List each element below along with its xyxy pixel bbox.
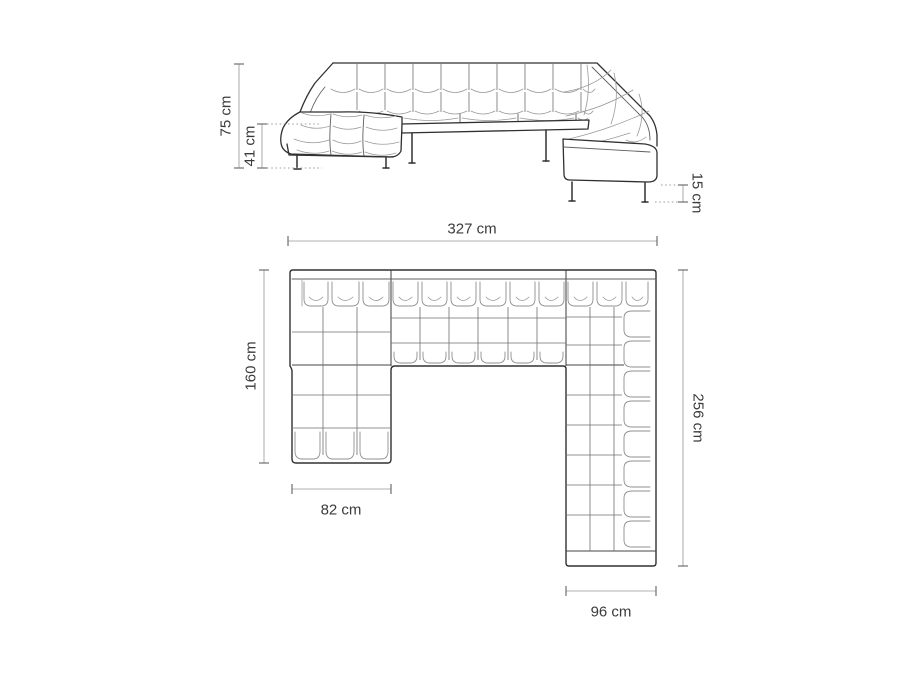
dimension-leg-height: 15 cm (655, 173, 706, 214)
plan-view: 327 cm 160 cm 82 cm 256 cm 96 cm (243, 221, 707, 621)
right-arm-width-label: 96 cm (591, 604, 632, 621)
back-tuft-scallops (331, 89, 595, 114)
plan-right-grid (566, 307, 622, 551)
plan-back-cushions (304, 282, 648, 306)
leg-height-label: 15 cm (689, 173, 706, 214)
dimension-total-height: 75 cm (218, 64, 245, 168)
total-width-label: 327 cm (447, 221, 496, 238)
diagram-canvas: 75 cm 41 cm 15 cm (0, 0, 900, 675)
chaise-width-label: 82 cm (321, 502, 362, 519)
chaise-module (281, 112, 402, 157)
perspective-view: 75 cm 41 cm 15 cm (218, 63, 706, 213)
dimension-right-depth: 256 cm (678, 270, 707, 566)
corner-tufts (564, 65, 649, 152)
sofa-plan-drawing (290, 270, 656, 566)
right-arm-panel (563, 139, 657, 182)
dimension-total-width: 327 cm (288, 221, 657, 247)
dimension-chaise-width: 82 cm (292, 484, 391, 519)
left-depth-label: 160 cm (243, 341, 260, 390)
seat-height-label: 41 cm (242, 126, 259, 167)
plan-chaise-bottom-scallops (295, 432, 388, 459)
dimension-left-depth: 160 cm (243, 270, 270, 463)
plan-right-cushion-scallops (624, 311, 650, 547)
dimension-right-arm-width: 96 cm (566, 586, 656, 621)
seat-front-rail (401, 120, 589, 133)
plan-outline (290, 270, 656, 566)
total-height-label: 75 cm (218, 96, 235, 137)
back-tuft-dividers (357, 64, 581, 112)
sofa-perspective-drawing (281, 63, 657, 202)
right-depth-label: 256 cm (690, 393, 707, 442)
sofa-dimension-diagram: 75 cm 41 cm 15 cm (0, 0, 900, 675)
plan-chaise-grid (292, 307, 391, 455)
plan-middle-front-scallops (394, 352, 563, 363)
